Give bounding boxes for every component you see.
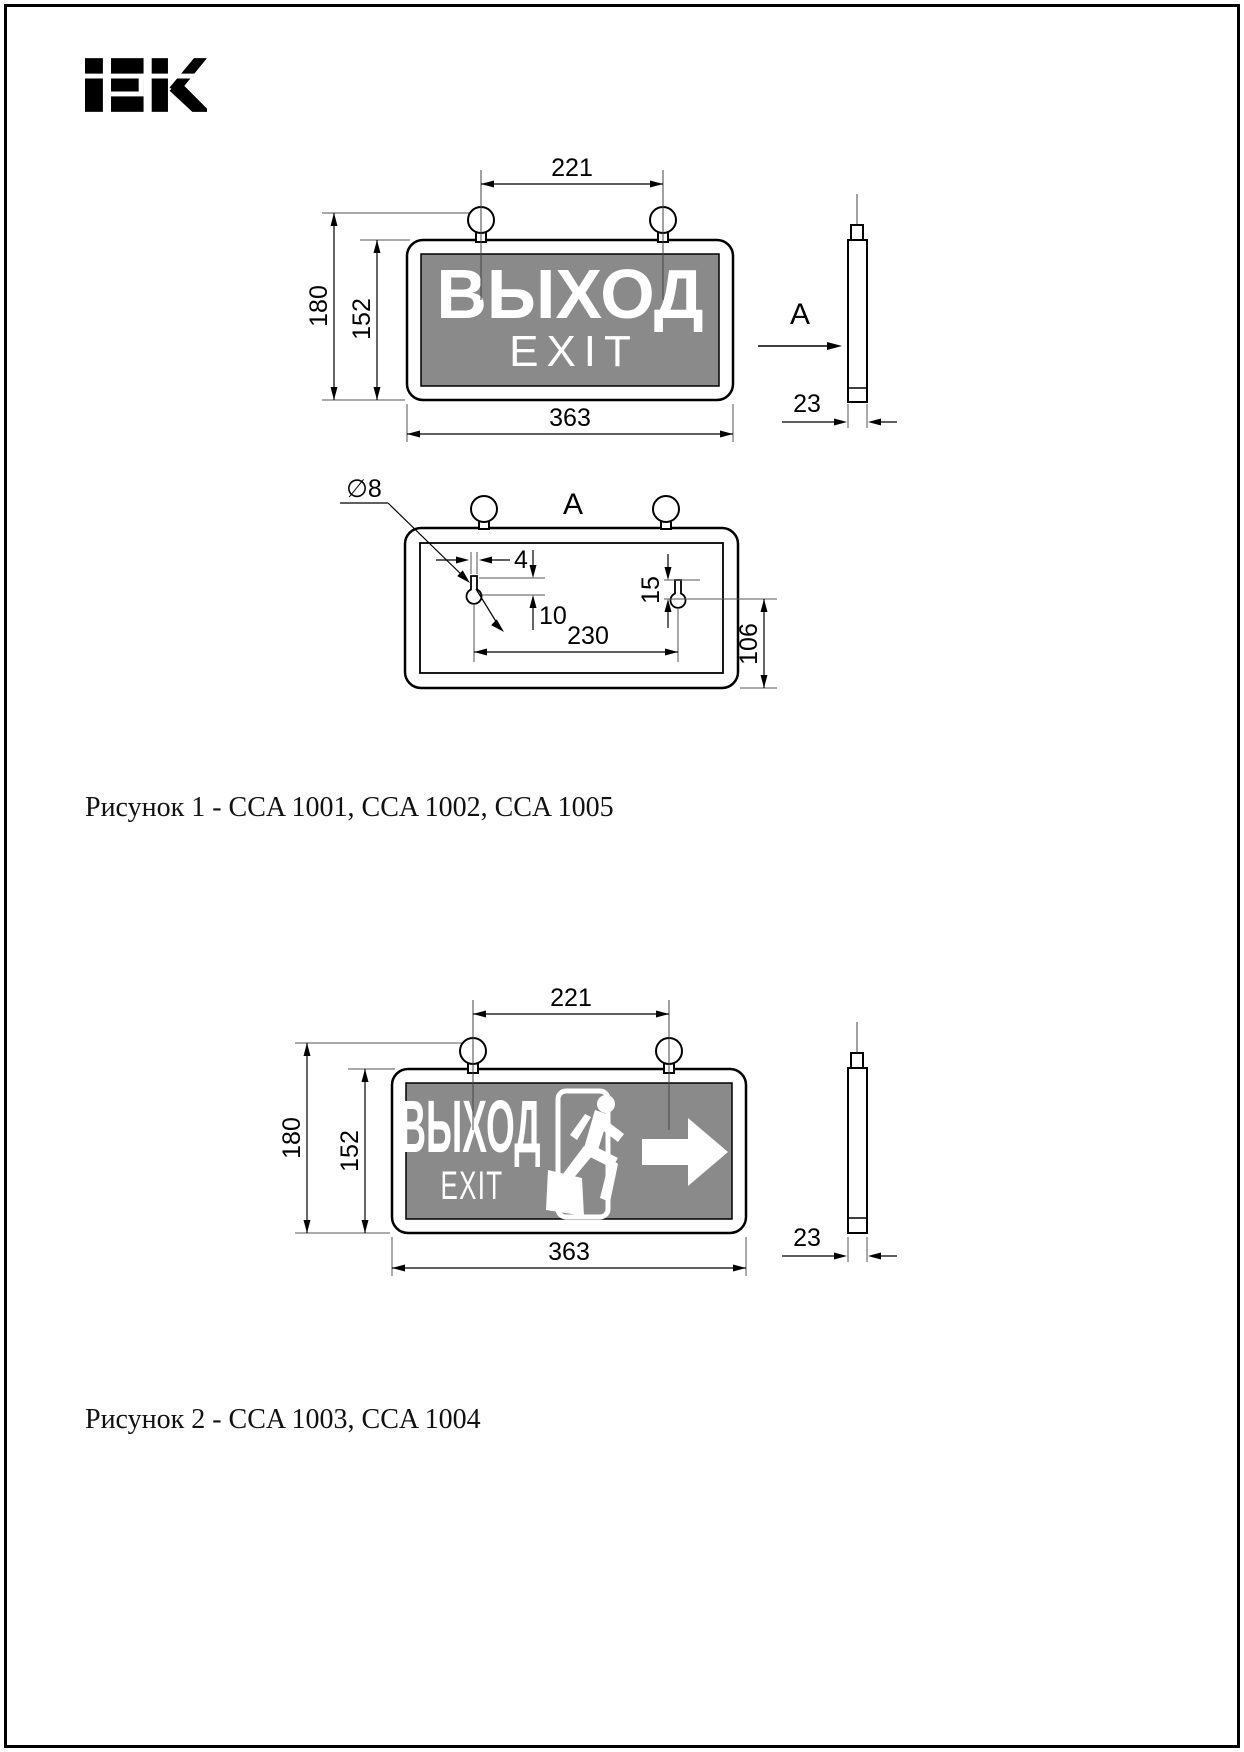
svg-text:152: 152	[336, 1130, 364, 1172]
hanger-ring-icon	[471, 496, 497, 522]
fig1-dim-overall-height: 180	[305, 213, 338, 400]
svg-text:∅8: ∅8	[346, 475, 382, 503]
svg-text:363: 363	[548, 1238, 590, 1266]
fig2-side-view: 23	[782, 1022, 897, 1262]
datasheet-page: ВЫХОД EXIT 221 180	[0, 0, 1244, 1752]
svg-text:363: 363	[549, 404, 591, 432]
svg-text:180: 180	[278, 1117, 306, 1159]
sign-text-vykhod: ВЫХОД	[436, 255, 703, 333]
svg-text:221: 221	[550, 984, 592, 1012]
sign-text-vykhod: ВЫХОД	[399, 1086, 540, 1168]
fig2-dim-ring-span: 221	[473, 984, 669, 1018]
svg-text:4: 4	[514, 546, 528, 574]
fig1-rear-view: A ∅8	[340, 475, 777, 688]
fig1-dim-width: 363	[407, 404, 733, 442]
technical-drawing: ВЫХОД EXIT 221 180	[0, 0, 1244, 1752]
svg-text:23: 23	[793, 1224, 821, 1252]
svg-text:152: 152	[348, 298, 376, 340]
view-label-a: A	[790, 298, 810, 331]
svg-text:23: 23	[793, 390, 821, 418]
rear-view-title: A	[563, 488, 583, 521]
fig2-dim-width: 363	[392, 1237, 746, 1276]
svg-text:221: 221	[551, 154, 593, 182]
fig1-front-view: ВЫХОД EXIT 221 180	[305, 154, 733, 442]
fig2-dim-panel-height: 152	[336, 1069, 369, 1233]
fig1-dim-depth: 23	[782, 390, 897, 428]
hanger-ring-icon	[653, 496, 679, 522]
fig1-dim-ring-span: 221	[481, 154, 663, 188]
fig2-dim-depth: 23	[782, 1224, 897, 1262]
fig2-dim-overall-height: 180	[278, 1043, 311, 1233]
svg-text:180: 180	[305, 285, 333, 327]
fig1-side-view: A 23	[758, 194, 897, 428]
sign-text-exit: EXIT	[509, 327, 639, 376]
svg-text:15: 15	[637, 576, 665, 604]
svg-text:230: 230	[567, 622, 609, 650]
fig1-dim-hole-vertical: 106	[735, 599, 777, 688]
fig1-view-arrow: A	[758, 298, 842, 350]
figure1-caption: Рисунок 1 - CCA 1001, CCA 1002, CCA 1005	[85, 792, 614, 824]
fig2-front-view: ВЫХОД EXIT	[278, 984, 746, 1276]
hanger-pin-icon	[851, 225, 863, 240]
svg-text:10: 10	[539, 602, 567, 630]
sign-text-exit: EXIT	[441, 1163, 504, 1208]
hanger-pin-icon	[851, 1053, 863, 1068]
fig1-dim-panel-height: 152	[348, 240, 381, 400]
svg-text:106: 106	[735, 623, 763, 665]
figure2-caption: Рисунок 2 - CCA 1003, CCA 1004	[85, 1404, 481, 1436]
